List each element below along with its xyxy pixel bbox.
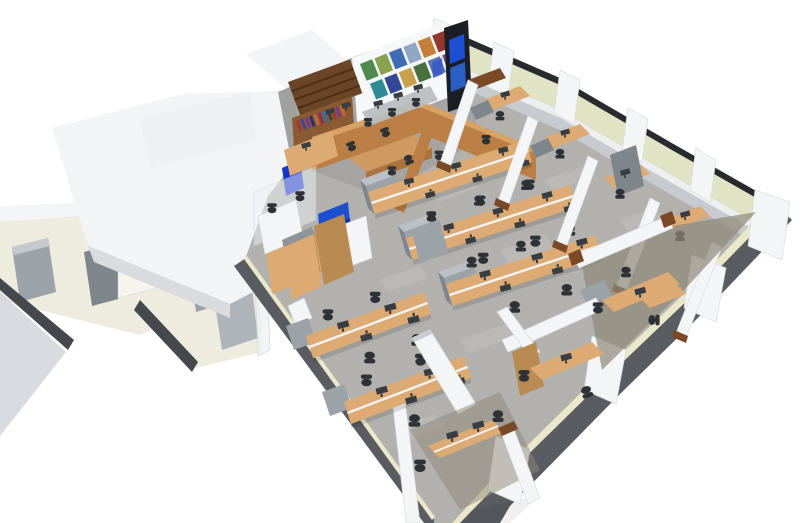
chair [561,284,572,296]
chair [267,203,277,213]
chair [478,253,489,264]
chair [388,108,396,117]
chair [467,257,477,268]
render-canvas [0,0,800,523]
chair [648,315,659,326]
chair [482,135,491,144]
chair [476,195,486,205]
chair [593,302,604,313]
chair [370,292,381,303]
chair [409,414,421,426]
chair [323,309,334,320]
chair [295,191,305,201]
chair [364,118,372,127]
chair [516,241,526,252]
chair [519,370,530,382]
chair [414,460,426,472]
office-floorplan-render: Isometric 3D cutaway rendering of an off… [0,0,800,523]
chair [530,236,541,247]
chair [361,375,372,387]
chair [496,111,505,120]
chair [387,166,396,175]
chair [621,267,631,278]
chair [492,410,503,422]
chair [364,352,375,364]
chair [525,180,535,190]
chair [615,189,625,199]
chair [426,211,436,221]
chair [555,149,564,159]
chair [509,301,520,313]
chair [412,98,420,107]
